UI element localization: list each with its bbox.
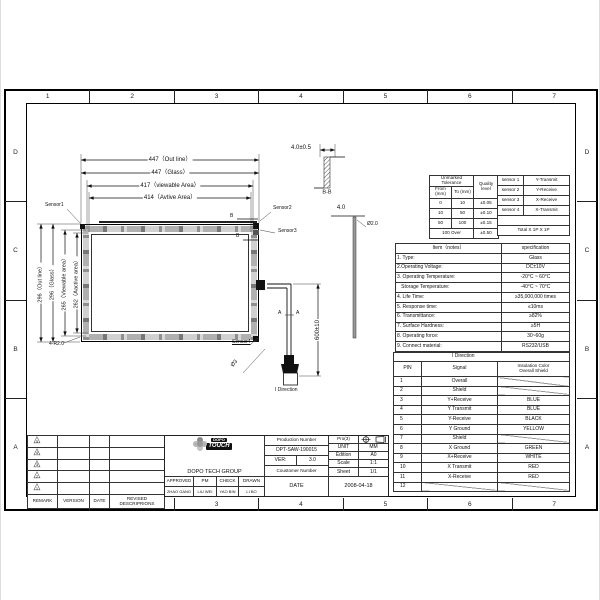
dim-glass-edge: 4.0 xyxy=(337,205,345,211)
cell: 6 xyxy=(394,424,422,434)
table-row: 010±0.05 xyxy=(430,198,499,208)
table-row: 5. Response time:≤10ms xyxy=(396,302,570,312)
section-a-letter: A xyxy=(278,311,281,316)
table-row: 3. Operating Temperature:-20°C ~ 60°C xyxy=(396,273,570,283)
cell: 12 xyxy=(394,482,422,492)
cell: 0 xyxy=(430,198,452,208)
cell: RED xyxy=(498,472,570,482)
table-row: △1 xyxy=(28,483,165,495)
cell: ±0.15 xyxy=(474,218,499,228)
cell: ±0.10 xyxy=(474,208,499,218)
grid-ref-top: 1 2 3 4 5 6 7 xyxy=(6,90,596,103)
table-row: I Direction xyxy=(394,353,570,362)
cell xyxy=(498,482,570,492)
cell: RED xyxy=(498,463,570,473)
cell xyxy=(58,459,90,471)
sensor-strip-right xyxy=(251,226,257,340)
revision-mark-cell: △2 xyxy=(28,471,58,483)
cell: 1. Type: xyxy=(396,253,502,263)
table-row: 100 Over±0.50 xyxy=(430,228,499,238)
dim-viewable-width: 417（viewable Area） xyxy=(139,183,200,189)
cell: X Ground xyxy=(422,444,498,454)
cell xyxy=(110,447,165,459)
cell: Y-Receive xyxy=(524,186,570,196)
tolerance-quality-header: Quality level xyxy=(474,176,499,199)
cell: 2.Operating Voltage: xyxy=(396,263,502,273)
date-header: DATE xyxy=(90,495,110,509)
cell: 8. Operating force: xyxy=(396,332,502,342)
cell xyxy=(422,482,498,492)
table-row: 9. Connect material:RS232/USB xyxy=(396,342,570,352)
cell xyxy=(58,447,90,459)
cell: 3 xyxy=(394,396,422,406)
pin-table-title: I Direction xyxy=(394,353,570,362)
spec-header-item: Item（notes） xyxy=(396,244,502,254)
cell: 1 xyxy=(394,377,422,387)
cell: 6. Transmittance: xyxy=(396,312,502,322)
cell: BLUE xyxy=(498,396,570,406)
pin-table: I Direction PIN Signal Insulation ColorO… xyxy=(393,352,570,492)
table-row: Unmarked Tolerance Quality level xyxy=(430,176,499,187)
grid-ref-cell: 1 xyxy=(6,90,90,103)
revision-mark-cell: △3 xyxy=(28,459,58,471)
table-row: 4Y TransmitBLUE xyxy=(394,405,570,415)
cell: ±0.50 xyxy=(474,228,499,238)
cell: ≤10ms xyxy=(502,302,570,312)
table-row: 3Y+ReceiveBLUE xyxy=(394,396,570,406)
section-a-letter: A xyxy=(296,311,299,316)
sensor-total: Total X 1P X 1P xyxy=(498,226,570,236)
table-row: △2 xyxy=(28,471,165,483)
sensor-strip-bottom xyxy=(83,334,257,340)
tolerance-title: Unmarked Tolerance xyxy=(430,176,474,187)
cell: 100 xyxy=(452,218,474,228)
cell: Y-Receive xyxy=(422,415,498,425)
revised-descriptions-header: REVISED DESCRIPRIONS xyxy=(110,495,165,509)
grid-ref-cell: 3 xyxy=(175,90,259,103)
cell: 5 xyxy=(394,415,422,425)
cell: BLUE xyxy=(498,405,570,415)
tolerance-to-header: To (mm) xyxy=(452,186,474,198)
cell: sensor 1 xyxy=(498,176,524,186)
cell: 8 xyxy=(394,444,422,454)
cell: X+Receive xyxy=(422,453,498,463)
revision-mark-cell: △1 xyxy=(28,483,58,495)
cell: 5. Response time: xyxy=(396,302,502,312)
cell: 50 xyxy=(430,218,452,228)
table-row: 11X-ReceiveRED xyxy=(394,472,570,482)
cell: YELLOW xyxy=(498,424,570,434)
remark-header: REMARK xyxy=(28,495,58,509)
sensor2-label: Sensor2 xyxy=(273,206,292,211)
color-header: Insulation ColorOverall Shield xyxy=(498,362,570,377)
corner-radius-label: 4-R2.0 xyxy=(49,342,64,347)
table-row: 1. Type:Glass xyxy=(396,253,570,263)
grid-ref-cell: 5 xyxy=(344,90,428,103)
cell: 10 xyxy=(452,198,474,208)
table-row: 2Shield xyxy=(394,386,570,396)
revision-triangle-icon: △3 xyxy=(31,460,43,469)
cell: sensor 3 xyxy=(498,196,524,206)
revision-mark-cell: △4 xyxy=(28,447,58,459)
signal-header: Signal xyxy=(422,362,498,377)
cell: 10 xyxy=(394,463,422,473)
version-header: VERSION xyxy=(58,495,90,509)
revision-table: △5 △4 △3 △2 △1 REMARK VERSION DATE REVIS… xyxy=(27,435,165,509)
grid-ref-cell: 4 xyxy=(259,498,343,511)
cell xyxy=(498,377,570,387)
tolerance-table: Unmarked Tolerance Quality level From (m… xyxy=(429,175,499,239)
touch-panel-front-view xyxy=(81,224,259,342)
grid-ref-cell: 5 xyxy=(344,498,428,511)
table-row: 8. Operating force:30~60g xyxy=(396,332,570,342)
cell: Y Transmit xyxy=(422,405,498,415)
table-row: 6Y GroundYELLOW xyxy=(394,424,570,434)
cell: -40°C ~ 70°C xyxy=(502,283,570,293)
engineering-drawing-sheet: 1 2 3 4 5 6 7 1 2 3 4 5 6 7 D C B A D C … xyxy=(0,0,600,600)
cell xyxy=(58,483,90,495)
sensor-strip-left xyxy=(83,226,89,340)
section-bb-label: B-B xyxy=(322,190,331,196)
cell: sensor 2 xyxy=(498,186,524,196)
table-row: △3 xyxy=(28,459,165,471)
cell: Shield xyxy=(422,434,498,444)
cell xyxy=(58,471,90,483)
cell: Glass xyxy=(502,253,570,263)
table-row: sensor 4X-Transmit xyxy=(498,206,570,216)
revision-triangle-icon: △5 xyxy=(31,436,43,445)
pin-header: PIN xyxy=(394,362,422,377)
section-b-letter: B xyxy=(230,214,233,219)
dim-cable-length: 600±10 xyxy=(315,319,321,341)
table-row: sensor 2Y-Receive xyxy=(498,186,570,196)
cell xyxy=(90,436,110,448)
table-row: 50100±0.15 xyxy=(430,218,499,228)
section-b-letter: B xyxy=(236,234,239,239)
cell xyxy=(90,471,110,483)
dim-glass-width: 447（Glass） xyxy=(150,170,189,176)
cell: Storage Temperature: xyxy=(396,283,502,293)
cell xyxy=(498,216,570,226)
cell: ±0.05 xyxy=(474,198,499,208)
sensor1-pad xyxy=(80,224,85,229)
grid-ref-cell: C xyxy=(5,202,26,300)
cell xyxy=(110,436,165,448)
grid-ref-cell: 3 xyxy=(175,498,259,511)
table-row: sensor 3X-Receive xyxy=(498,196,570,206)
grid-ref-cell: A xyxy=(5,399,26,496)
cell: X Transmit xyxy=(422,463,498,473)
table-row: 4. Life Time:≥35,000,000 times xyxy=(396,293,570,303)
cell: X-Receive xyxy=(422,472,498,482)
sensor-mapping-table: sensor 1Y-Transmit sensor 2Y-Receive sen… xyxy=(497,175,570,236)
dim-glass-height: 296（Glass） xyxy=(50,265,56,301)
grid-ref-cell: 7 xyxy=(513,498,596,511)
cell: ≥82% xyxy=(502,312,570,322)
cell xyxy=(90,459,110,471)
table-row: 7. Surface Hardness:≥5H xyxy=(396,322,570,332)
cell: 10 xyxy=(430,208,452,218)
cell: 100 Over xyxy=(430,228,474,238)
table-row: 10X TransmitRED xyxy=(394,463,570,473)
cell: -20°C ~ 60°C xyxy=(502,273,570,283)
cell: sensor 4 xyxy=(498,206,524,216)
cell: GREEN xyxy=(498,444,570,454)
cell: 50 xyxy=(452,208,474,218)
sensor3-pad xyxy=(253,230,259,235)
cell: ≥5H xyxy=(502,322,570,332)
cell xyxy=(110,483,165,495)
cell: Y-Transmit xyxy=(524,176,570,186)
cell: 30~60g xyxy=(502,332,570,342)
cell: 3. Operating Temperature: xyxy=(396,273,502,283)
cell: 7 xyxy=(394,434,422,444)
cell: 2 xyxy=(394,386,422,396)
cell: 11 xyxy=(394,472,422,482)
cell: 4. Life Time: xyxy=(396,293,502,303)
cell: BLACK xyxy=(498,415,570,425)
cell xyxy=(90,483,110,495)
cell xyxy=(110,459,165,471)
table-row: 1050±0.10 xyxy=(430,208,499,218)
table-row: 6. Transmittance:≥82% xyxy=(396,312,570,322)
sensor3-label: Sensor3 xyxy=(278,229,297,234)
table-row: PIN Signal Insulation ColorOverall Shiel… xyxy=(394,362,570,377)
sensor4-label: Sensor4 xyxy=(232,340,251,345)
table-row: 9X+ReceiveWHITE xyxy=(394,453,570,463)
active-area-outline xyxy=(91,234,249,332)
cell: WHITE xyxy=(498,453,570,463)
dim-active-height: 262（Aactive area） xyxy=(74,257,80,310)
revision-mark-cell: △5 xyxy=(28,436,58,448)
grid-ref-cell: D xyxy=(577,104,597,202)
grid-ref-cell: A xyxy=(577,399,597,496)
cell: RS232/USB xyxy=(502,342,570,352)
grid-ref-cell: B xyxy=(577,301,597,399)
sensor4-pad xyxy=(253,336,259,342)
cell: Y+Receive xyxy=(422,396,498,406)
grid-ref-cell: C xyxy=(577,202,597,300)
connector-direction-label: I Direction xyxy=(275,388,298,393)
sensor1-label: Sensor1 xyxy=(45,203,64,208)
cell xyxy=(110,471,165,483)
grid-ref-cell: 4 xyxy=(259,90,343,103)
tolerance-from-header: From (mm) xyxy=(430,186,452,198)
dim-thickness: 4.0±0.5 xyxy=(291,145,311,151)
table-row: Storage Temperature:-40°C ~ 70°C xyxy=(396,283,570,293)
sensor2-pad xyxy=(253,223,259,229)
table-row: Item（notes）specification xyxy=(396,244,570,254)
grid-ref-cell: 2 xyxy=(90,90,174,103)
revision-triangle-icon: △2 xyxy=(31,471,43,480)
cell: Shield xyxy=(422,386,498,396)
cell: X-Receive xyxy=(524,196,570,206)
cell: Overall xyxy=(422,377,498,387)
title-block-border xyxy=(164,435,389,497)
cell: 7. Surface Hardness: xyxy=(396,322,502,332)
table-row: 8X GroundGREEN xyxy=(394,444,570,454)
cell xyxy=(90,447,110,459)
table-row: 7Shield xyxy=(394,434,570,444)
grid-ref-cell: 6 xyxy=(428,498,512,511)
dim-glass-dia: Ø2.0 xyxy=(367,222,378,227)
grid-ref-right: D C B A xyxy=(577,104,597,496)
dim-outline-height: 296（Out line） xyxy=(38,262,44,303)
color-header-line2: Overall Shield xyxy=(519,368,548,373)
cell xyxy=(58,436,90,448)
table-row: 1Overall xyxy=(394,377,570,387)
specification-table: Item（notes）specification 1. Type:Glass 2… xyxy=(395,243,570,352)
table-row xyxy=(498,216,570,226)
cell: 4 xyxy=(394,405,422,415)
table-row: 5Y-ReceiveBLACK xyxy=(394,415,570,425)
table-row: 12 xyxy=(394,482,570,492)
cell: DC±10V xyxy=(502,263,570,273)
cell xyxy=(498,434,570,444)
revision-triangle-icon: △1 xyxy=(31,483,43,492)
dim-viewable-height: 265（Viewable area） xyxy=(62,255,68,312)
dim-outline-width: 447（Out line） xyxy=(148,157,193,163)
cell: ≥35,000,000 times xyxy=(502,293,570,303)
table-row: REMARK VERSION DATE REVISED DESCRIPRIONS xyxy=(28,495,165,509)
cell: 9 xyxy=(394,453,422,463)
grid-ref-cell: D xyxy=(5,104,26,202)
spec-header-spec: specification xyxy=(502,244,570,254)
table-row: sensor 1Y-Transmit xyxy=(498,176,570,186)
grid-ref-cell: B xyxy=(5,301,26,399)
dim-active-width: 414（Avtive Area） xyxy=(143,195,197,201)
cell: X-Transmit xyxy=(524,206,570,216)
revision-triangle-icon: △4 xyxy=(31,448,43,457)
cell xyxy=(498,386,570,396)
table-row: △5 xyxy=(28,436,165,448)
grid-ref-cell: 7 xyxy=(513,90,596,103)
table-row: △4 xyxy=(28,447,165,459)
grid-ref-left: D C B A xyxy=(5,104,26,496)
grid-ref-cell: 6 xyxy=(428,90,512,103)
table-row: Total X 1P X 1P xyxy=(498,226,570,236)
sensor-strip-top xyxy=(83,226,257,232)
table-row: 2.Operating Voltage:DC±10V xyxy=(396,263,570,273)
cell: Y Ground xyxy=(422,424,498,434)
cell: 9. Connect material: xyxy=(396,342,502,352)
